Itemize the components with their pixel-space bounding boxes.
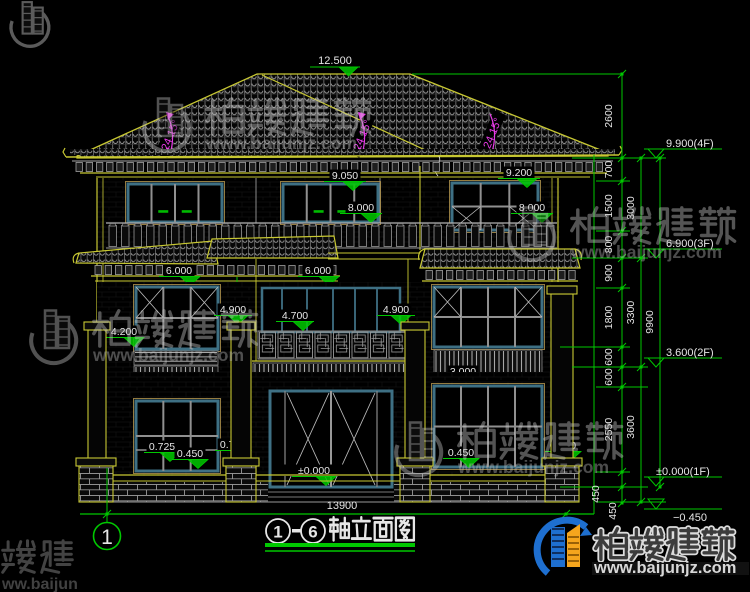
- svg-text:12.500: 12.500: [318, 55, 352, 67]
- svg-text:13900: 13900: [327, 500, 358, 512]
- svg-text:0.450: 0.450: [177, 448, 203, 460]
- svg-text:±0.000(1F): ±0.000(1F): [656, 466, 710, 478]
- svg-text:450: 450: [607, 502, 619, 520]
- svg-text:4.700: 4.700: [282, 310, 308, 322]
- svg-text:9.050: 9.050: [332, 170, 358, 182]
- svg-text:0.725: 0.725: [149, 441, 175, 453]
- svg-text:www.baijunjz.com: www.baijunjz.com: [457, 457, 609, 477]
- svg-text:900: 900: [603, 264, 615, 282]
- svg-text:1: 1: [101, 526, 113, 549]
- svg-text:www.baijunjz.com: www.baijunjz.com: [92, 345, 244, 365]
- svg-text:6.000: 6.000: [166, 265, 192, 277]
- svg-text:6.000: 6.000: [305, 265, 331, 277]
- svg-text:2600: 2600: [603, 104, 615, 128]
- svg-text:6: 6: [308, 523, 317, 542]
- svg-text:3300: 3300: [625, 301, 637, 325]
- svg-text:4.900: 4.900: [383, 304, 409, 316]
- svg-text:700: 700: [603, 161, 615, 179]
- svg-text:1800: 1800: [603, 306, 615, 330]
- svg-text:600: 600: [603, 348, 615, 366]
- svg-text:www.baijunjz.com: www.baijunjz.com: [593, 559, 736, 577]
- svg-text:9.200: 9.200: [506, 167, 532, 179]
- svg-text:www.baijunjz.com: www.baijunjz.com: [570, 242, 722, 262]
- svg-text:ww.baijun: ww.baijun: [1, 576, 78, 592]
- svg-text:www.baijunjz.com: www.baijunjz.com: [205, 133, 357, 153]
- svg-text:450: 450: [590, 485, 602, 503]
- svg-text:9.900(4F): 9.900(4F): [666, 138, 714, 150]
- svg-text:−0.450: −0.450: [673, 512, 707, 524]
- svg-text:3600: 3600: [625, 415, 637, 439]
- svg-text:9900: 9900: [644, 310, 656, 334]
- svg-text:1: 1: [273, 523, 282, 542]
- svg-text:600: 600: [603, 368, 615, 386]
- svg-text:3.600(2F): 3.600(2F): [666, 347, 714, 359]
- svg-text:8.000: 8.000: [348, 202, 374, 214]
